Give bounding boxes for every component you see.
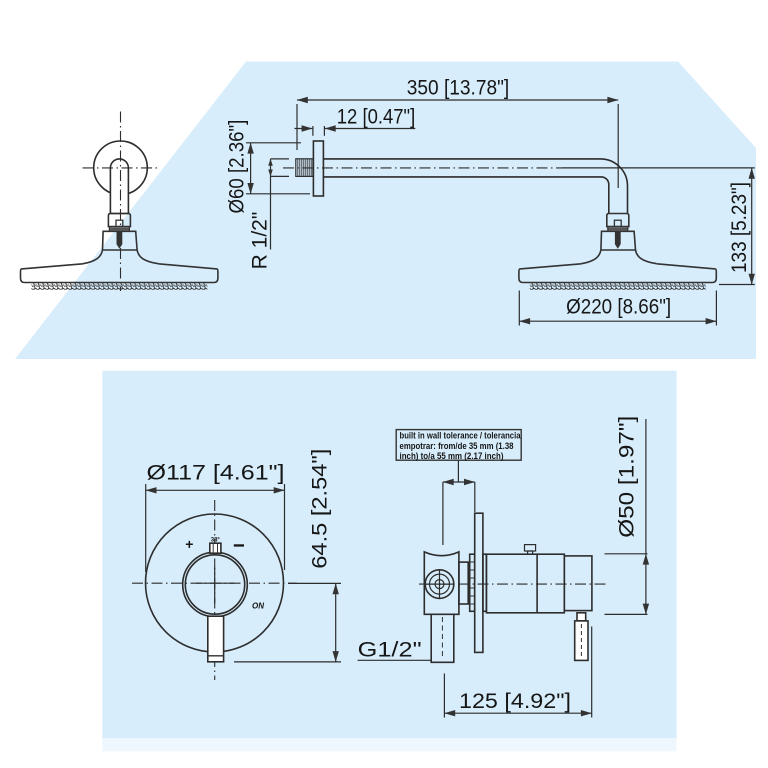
svg-text:64.5 [2.54"]: 64.5 [2.54"] — [309, 449, 332, 569]
svg-text:R 1/2": R 1/2" — [248, 212, 271, 270]
svg-text:133 [5.23"]: 133 [5.23"] — [728, 182, 751, 273]
svg-text:inch) to/a 55 mm (2.17 inch): inch) to/a 55 mm (2.17 inch) — [400, 451, 504, 461]
svg-text:Ø117 [4.61"]: Ø117 [4.61"] — [147, 462, 285, 485]
svg-text:Ø60 [2.36"]: Ø60 [2.36"] — [225, 120, 248, 214]
svg-text:built in wall tolerance / tole: built in wall tolerance / tolerancia — [400, 431, 522, 441]
svg-text:38°: 38° — [211, 538, 221, 544]
svg-text:empotrar: from/de 35 mm (1.38: empotrar: from/de 35 mm (1.38 — [400, 441, 514, 451]
svg-text:ON: ON — [252, 602, 264, 611]
svg-text:+: + — [185, 536, 193, 552]
svg-text:G1/2": G1/2" — [358, 639, 422, 662]
svg-text:Ø220 [8.66"]: Ø220 [8.66"] — [566, 296, 671, 319]
svg-text:125 [4.92"]: 125 [4.92"] — [459, 690, 571, 713]
svg-text:12 [0.47"]: 12 [0.47"] — [337, 106, 416, 129]
svg-text:Ø50 [1.97"]: Ø50 [1.97"] — [616, 416, 639, 538]
svg-text:350 [13.78"]: 350 [13.78"] — [407, 76, 510, 99]
